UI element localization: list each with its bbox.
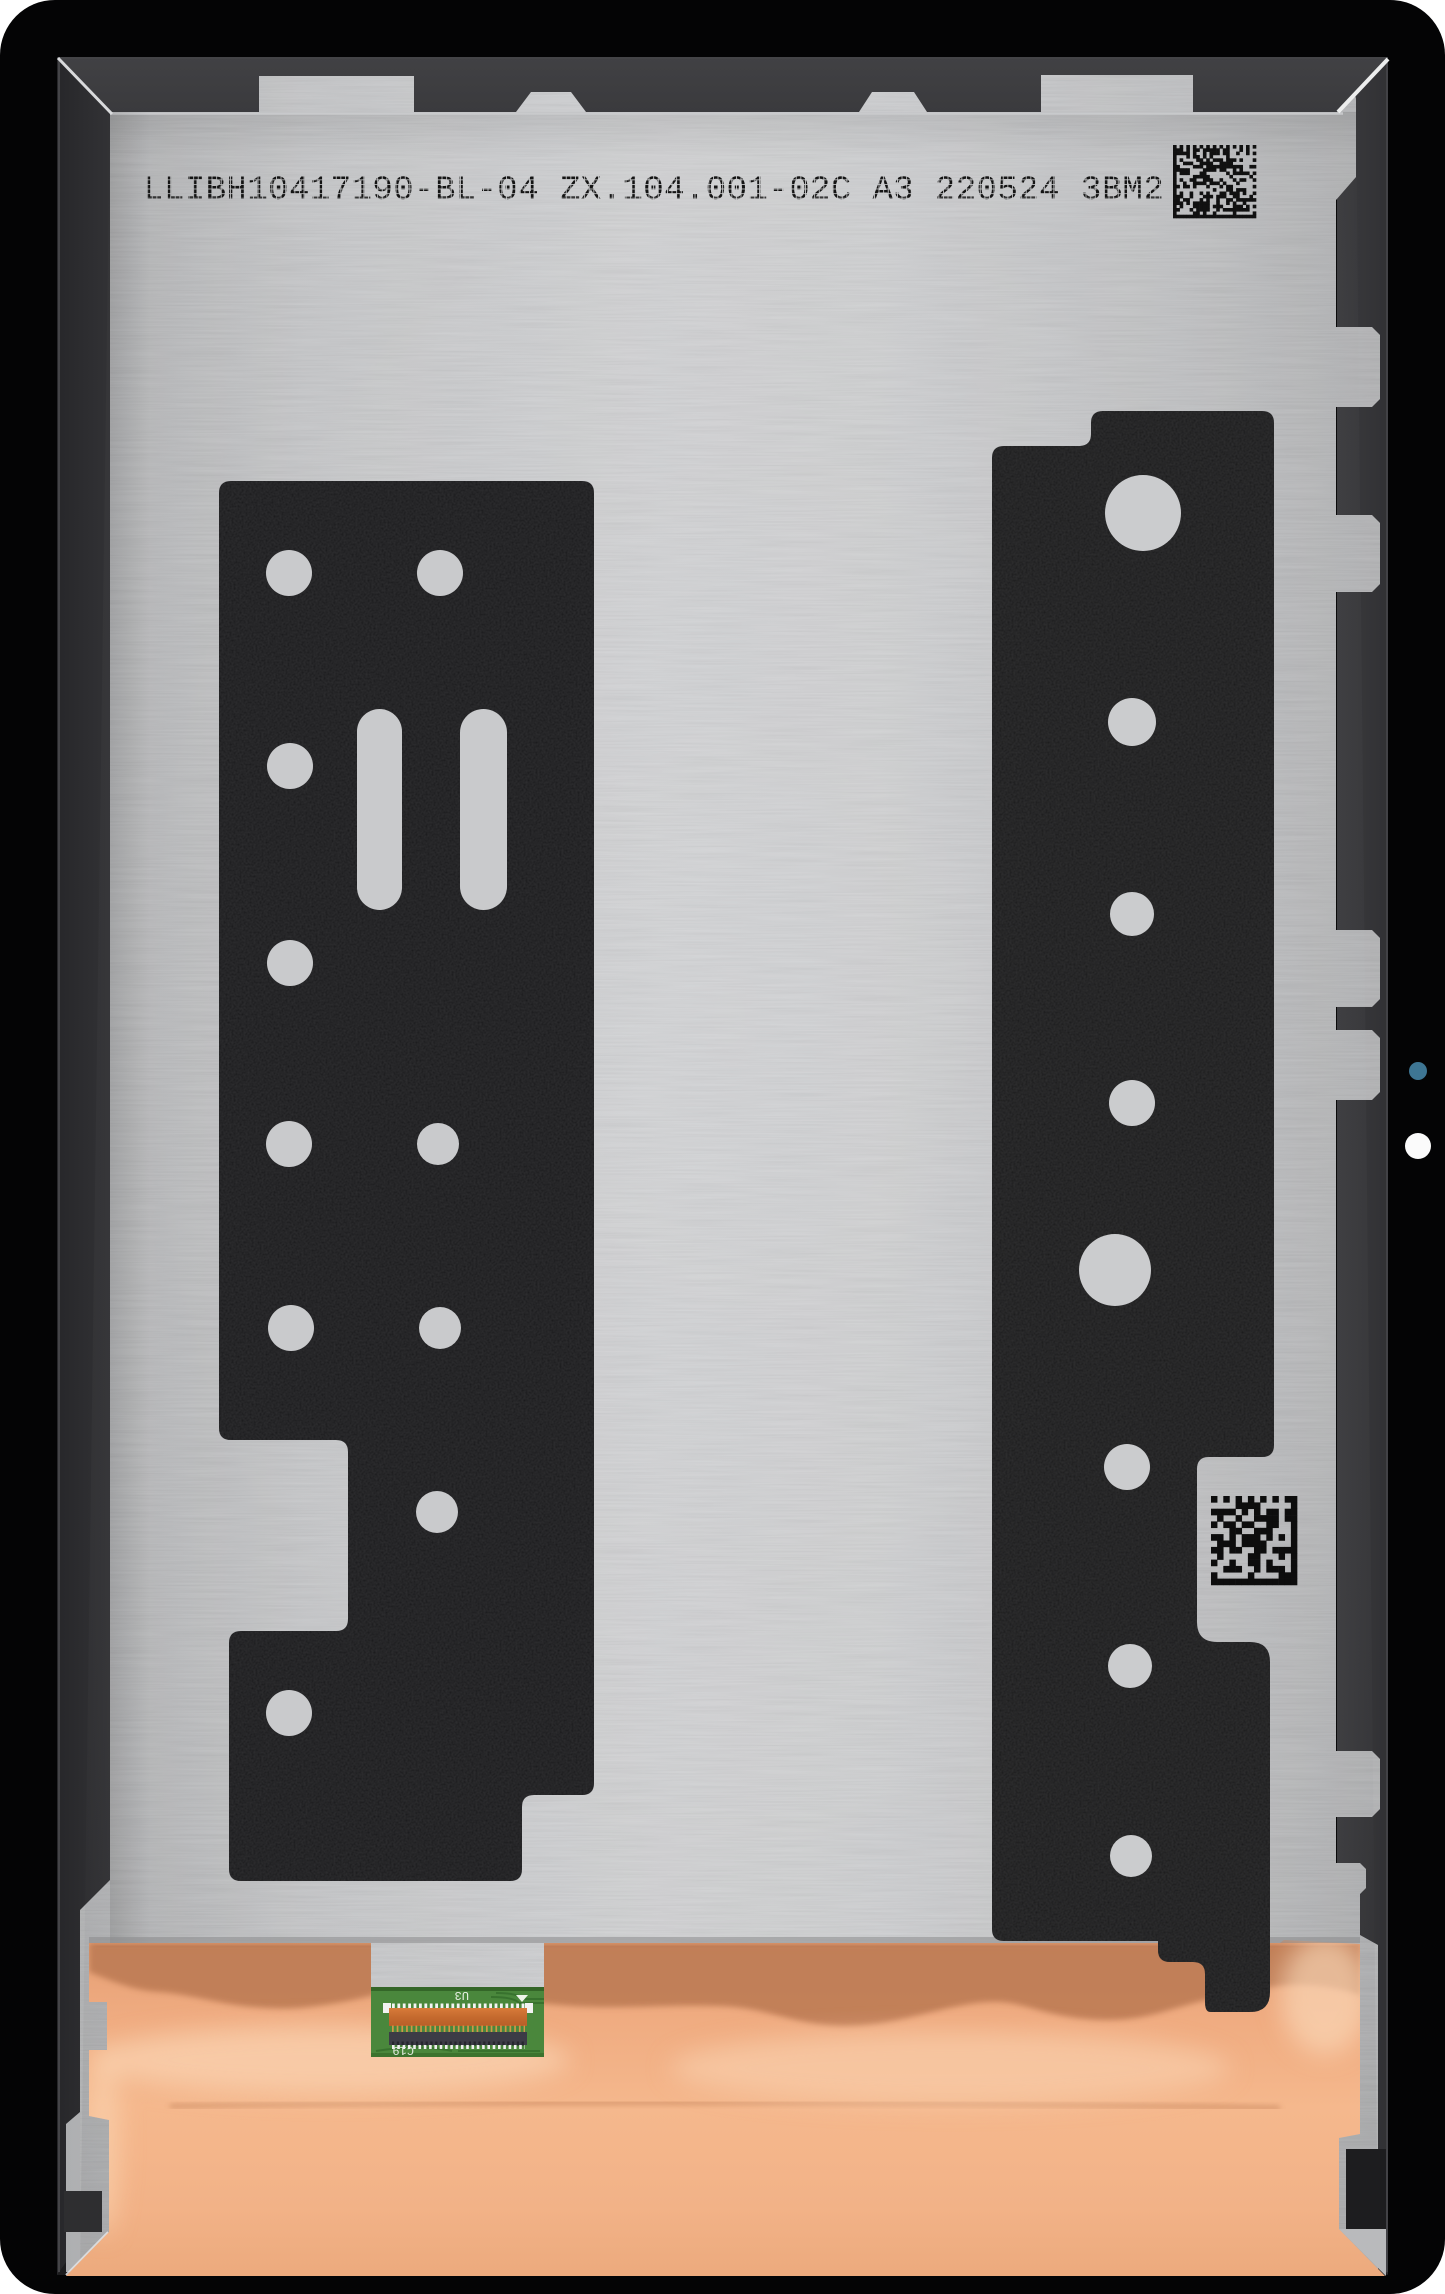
svg-text:LLIBH10417190-BL-04 ZX.104.001: LLIBH10417190-BL-04 ZX.104.001-02C A3 22… (143, 171, 1164, 210)
svg-text:U3: U3 (455, 1988, 469, 2002)
